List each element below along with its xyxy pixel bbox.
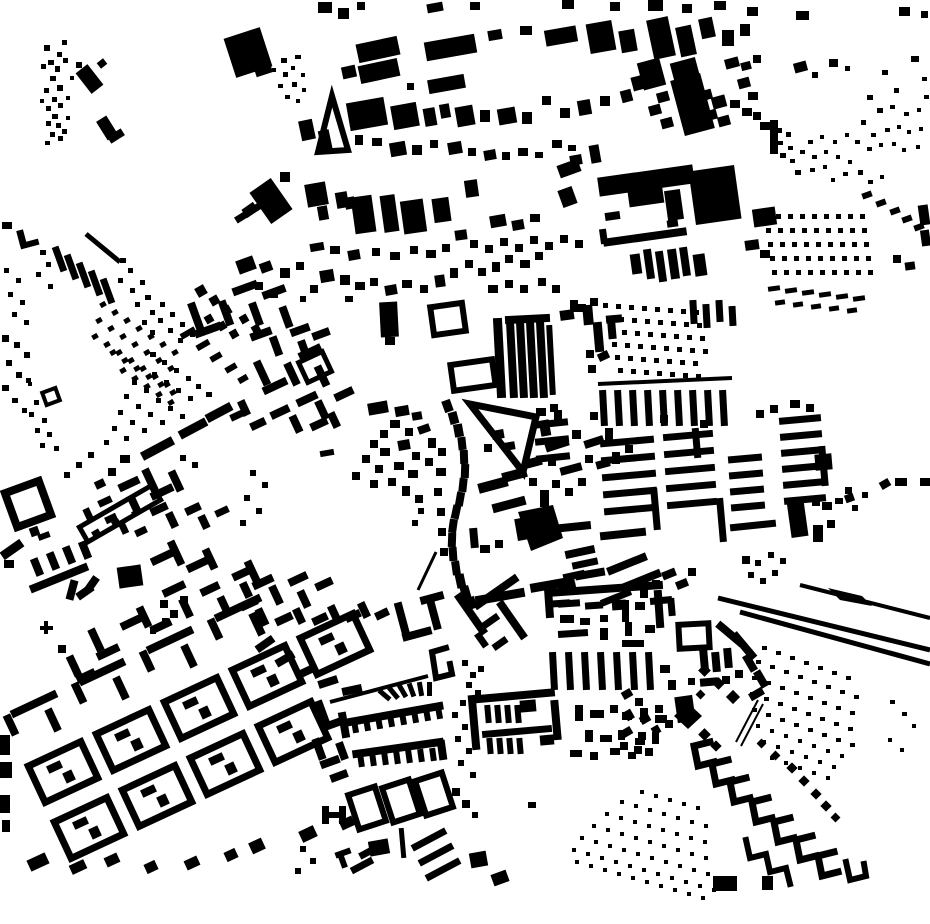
building-footprint	[753, 112, 761, 120]
building-footprint	[642, 306, 647, 311]
building-footprint	[375, 465, 383, 473]
building-footprint	[196, 384, 201, 389]
building-footprint	[762, 876, 773, 890]
building-footprint	[339, 806, 346, 824]
building-footprint	[615, 355, 620, 360]
building-footprint	[280, 268, 290, 278]
building-footprint	[812, 72, 818, 78]
building-footprint	[770, 729, 774, 733]
building-footprint	[700, 677, 719, 687]
building-footprint	[410, 246, 418, 254]
building-footprint	[742, 556, 750, 564]
building-footprint	[495, 540, 503, 548]
building-footprint	[748, 572, 754, 578]
building-footprint	[405, 428, 413, 436]
building-footprint	[788, 146, 793, 150]
building-footprint	[677, 347, 682, 352]
building-footprint	[586, 852, 590, 856]
building-footprint	[845, 133, 849, 137]
building-footprint	[52, 114, 58, 119]
building-footprint	[48, 284, 53, 289]
building-footprint	[76, 462, 82, 468]
building-footprint	[600, 735, 612, 742]
building-footprint	[778, 141, 783, 145]
building-footprint	[610, 705, 618, 713]
building-footprint	[772, 270, 777, 275]
building-footprint	[658, 320, 663, 325]
building-footprint	[170, 312, 175, 317]
building-footprint	[552, 140, 562, 148]
building-footprint	[893, 255, 901, 263]
building-footprint	[622, 712, 632, 720]
building-footprint	[186, 376, 191, 381]
building-footprint	[682, 4, 692, 13]
building-footprint	[822, 733, 827, 737]
building-footprint	[347, 249, 361, 261]
building-footprint	[902, 712, 907, 716]
building-footprint	[370, 440, 378, 448]
building-footprint	[180, 596, 188, 604]
building-footprint	[684, 322, 689, 327]
building-footprint	[322, 806, 329, 824]
building-footprint	[462, 660, 468, 666]
building-footprint	[522, 112, 532, 124]
building-footprint	[840, 242, 845, 247]
building-footprint	[16, 372, 22, 378]
building-footprint	[762, 740, 766, 744]
building-footprint	[478, 666, 484, 672]
building-footprint	[681, 309, 686, 314]
building-footprint	[484, 444, 492, 452]
building-footprint	[160, 600, 168, 608]
building-footprint	[848, 727, 853, 731]
building-footprint	[600, 96, 610, 106]
building-footprint	[788, 214, 793, 219]
building-footprint	[776, 651, 781, 655]
building-footprint	[776, 128, 782, 133]
building-footprint	[300, 846, 306, 852]
building-footprint	[58, 645, 66, 653]
building-footprint	[692, 868, 696, 872]
building-footprint	[460, 450, 468, 464]
building-footprint	[430, 140, 438, 148]
building-footprint	[470, 2, 480, 10]
building-footprint	[46, 121, 51, 126]
building-footprint	[0, 795, 10, 813]
building-footprint	[812, 214, 817, 219]
building-footprint	[690, 852, 694, 856]
building-footprint	[780, 718, 785, 722]
building-footprint	[845, 66, 850, 71]
building-footprint	[871, 133, 876, 137]
building-footprint	[572, 848, 576, 852]
building-footprint	[29, 412, 34, 417]
building-footprint	[760, 250, 770, 258]
building-footprint	[483, 149, 497, 161]
building-footprint	[867, 95, 873, 100]
building-footprint	[780, 153, 786, 158]
building-footprint	[41, 64, 46, 69]
building-footprint	[820, 135, 824, 139]
building-footprint	[48, 60, 54, 65]
building-footprint	[160, 420, 165, 425]
building-footprint	[755, 560, 761, 566]
building-footprint	[638, 344, 643, 349]
building-footprint	[390, 102, 420, 130]
building-footprint	[800, 150, 805, 154]
building-footprint	[104, 440, 109, 445]
building-footprint	[921, 11, 928, 18]
building-footprint	[782, 256, 787, 261]
building-footprint	[426, 250, 436, 258]
building-footprint	[676, 816, 680, 820]
building-footprint	[418, 508, 424, 514]
building-footprint	[280, 172, 290, 182]
building-footprint	[625, 622, 632, 636]
building-footprint	[890, 105, 895, 109]
building-footprint	[355, 282, 365, 290]
building-footprint	[55, 66, 60, 72]
building-footprint	[808, 696, 813, 700]
building-footprint	[813, 525, 823, 542]
building-footprint	[776, 745, 780, 749]
building-footprint	[570, 750, 582, 757]
building-footprint	[156, 398, 161, 403]
building-footprint	[590, 710, 604, 718]
building-footprint	[794, 691, 799, 695]
building-footprint	[904, 112, 909, 116]
building-footprint	[434, 274, 446, 287]
building-footprint	[515, 244, 523, 252]
building-footprint	[698, 884, 702, 888]
building-footprint	[415, 495, 423, 503]
building-footprint	[570, 300, 578, 312]
building-footprint	[645, 748, 653, 756]
building-footprint	[302, 88, 306, 92]
building-footprint	[46, 262, 51, 267]
building-footprint	[4, 560, 14, 568]
building-footprint	[852, 505, 858, 511]
building-footprint	[560, 615, 574, 623]
building-footprint	[575, 860, 579, 864]
building-footprint	[355, 135, 363, 145]
building-footprint	[560, 108, 570, 118]
building-footprint	[505, 280, 513, 288]
building-footprint	[820, 270, 825, 275]
building-footprint	[552, 480, 560, 488]
building-footprint	[577, 99, 592, 116]
building-footprint	[688, 678, 695, 685]
building-footprint	[304, 181, 329, 207]
building-footprint	[854, 256, 859, 261]
building-footprint	[730, 100, 740, 108]
building-footprint	[449, 547, 458, 562]
building-footprint	[330, 246, 340, 254]
building-footprint	[24, 352, 30, 358]
building-footprint	[852, 242, 857, 247]
building-footprint	[628, 864, 632, 868]
building-footprint	[772, 570, 778, 576]
building-footprint	[766, 681, 771, 685]
building-footprint	[778, 228, 783, 233]
building-footprint	[390, 252, 400, 260]
building-footprint	[631, 369, 636, 374]
building-footprint	[830, 256, 835, 261]
building-footprint	[764, 697, 769, 701]
building-footprint	[540, 490, 549, 507]
building-footprint	[625, 445, 633, 453]
building-footprint	[794, 723, 799, 727]
building-footprint	[645, 880, 649, 884]
building-footprint	[796, 11, 809, 20]
building-footprint	[703, 349, 708, 354]
building-footprint	[580, 836, 584, 840]
building-footprint	[62, 40, 67, 45]
building-footprint	[790, 750, 794, 754]
building-footprint	[848, 214, 853, 219]
building-footprint	[664, 860, 668, 864]
building-footprint	[22, 408, 27, 413]
building-footprint	[400, 199, 427, 235]
figure-ground-map-page	[0, 0, 930, 924]
building-footprint	[472, 812, 478, 818]
building-footprint	[352, 472, 360, 480]
building-footprint	[447, 141, 463, 155]
building-footprint	[520, 699, 537, 712]
building-footprint	[655, 715, 667, 723]
building-footprint	[671, 321, 676, 326]
building-footprint	[766, 713, 771, 717]
building-footprint	[160, 302, 165, 307]
building-footprint	[292, 82, 297, 87]
building-footprint	[641, 357, 646, 362]
building-footprint	[760, 122, 770, 130]
building-footprint	[682, 802, 686, 806]
building-footprint	[688, 568, 696, 576]
building-footprint	[823, 165, 827, 169]
building-footprint	[868, 270, 873, 275]
building-footprint	[687, 335, 692, 340]
building-footprint	[427, 682, 432, 696]
building-footprint	[575, 240, 583, 248]
building-footprint	[535, 152, 543, 158]
building-footprint	[617, 872, 621, 876]
building-footprint	[128, 268, 133, 273]
building-footprint	[845, 487, 852, 494]
building-footprint	[892, 142, 896, 146]
building-footprint	[380, 430, 388, 438]
building-footprint	[778, 702, 783, 706]
building-footprint	[562, 0, 574, 9]
building-footprint	[448, 533, 456, 547]
building-footprint	[796, 270, 801, 275]
building-footprint	[668, 798, 672, 802]
building-footprint	[701, 896, 705, 900]
building-footprint	[622, 330, 627, 335]
building-footprint	[700, 336, 705, 341]
building-footprint	[848, 160, 852, 164]
building-footprint	[904, 261, 915, 270]
building-footprint	[586, 20, 617, 54]
building-footprint	[922, 77, 927, 81]
building-footprint	[296, 99, 300, 103]
building-footprint	[397, 439, 411, 451]
building-footprint	[502, 152, 510, 160]
building-footprint	[776, 214, 781, 219]
building-footprint	[810, 168, 815, 172]
building-footprint	[756, 724, 760, 728]
building-footprint	[660, 665, 670, 673]
building-footprint	[291, 66, 295, 70]
building-footprint	[826, 228, 831, 233]
building-footprint	[634, 836, 638, 840]
building-footprint	[117, 564, 144, 588]
building-footprint	[742, 108, 752, 116]
building-footprint	[319, 269, 335, 283]
building-footprint	[520, 260, 530, 268]
building-footprint	[108, 468, 116, 476]
building-footprint	[2, 820, 10, 832]
building-footprint	[168, 328, 173, 333]
building-footprint	[764, 214, 769, 219]
building-footprint	[826, 685, 831, 689]
building-footprint	[744, 239, 759, 251]
building-footprint	[497, 107, 518, 126]
building-footprint	[648, 840, 652, 844]
building-footprint	[735, 670, 743, 678]
building-footprint	[740, 24, 750, 36]
building-footprint	[412, 452, 420, 460]
building-footprint	[668, 680, 676, 690]
building-footprint	[357, 2, 365, 10]
building-footprint	[580, 618, 590, 625]
building-footprint	[256, 508, 262, 514]
building-footprint	[150, 310, 155, 315]
building-footprint	[770, 665, 775, 669]
building-footprint	[836, 155, 840, 159]
building-footprint	[468, 148, 476, 156]
building-footprint	[12, 398, 18, 403]
building-footprint	[812, 680, 817, 684]
building-footprint	[895, 478, 907, 486]
building-footprint	[600, 628, 608, 640]
building-footprint	[606, 316, 611, 321]
building-footprint	[612, 600, 627, 611]
building-footprint	[58, 136, 63, 141]
building-footprint	[425, 458, 433, 466]
building-footprint	[619, 317, 624, 322]
building-footprint	[454, 105, 475, 128]
building-footprint	[920, 478, 930, 486]
building-footprint	[784, 270, 789, 275]
building-footprint	[850, 743, 855, 747]
building-footprint	[644, 370, 649, 375]
building-footprint	[57, 52, 62, 57]
building-footprint	[629, 305, 634, 310]
building-footprint	[827, 520, 835, 528]
building-footprint	[278, 84, 283, 88]
building-footprint	[635, 331, 640, 336]
building-footprint	[295, 868, 301, 874]
building-footprint	[648, 808, 652, 812]
building-footprint	[747, 7, 758, 16]
building-footprint	[575, 705, 583, 721]
building-footprint	[622, 848, 626, 852]
building-footprint	[880, 175, 884, 179]
building-footprint	[12, 312, 17, 317]
building-footprint	[582, 305, 594, 326]
building-footprint	[592, 824, 596, 828]
building-footprint	[806, 256, 811, 261]
building-footprint	[846, 676, 851, 680]
building-footprint	[500, 238, 508, 246]
building-footprint	[675, 832, 679, 836]
building-footprint	[394, 462, 404, 470]
building-footprint	[135, 302, 140, 307]
building-footprint	[697, 323, 702, 328]
building-footprint	[609, 329, 614, 334]
building-footprint	[800, 214, 805, 219]
building-footprint	[428, 438, 436, 448]
building-footprint	[706, 872, 710, 876]
building-footprint	[412, 145, 422, 155]
building-footprint	[318, 2, 332, 13]
building-footprint	[44, 88, 49, 93]
building-footprint	[16, 278, 21, 283]
building-footprint	[50, 132, 55, 137]
building-footprint	[338, 8, 349, 19]
building-footprint	[535, 252, 543, 260]
building-footprint	[565, 488, 573, 496]
building-footprint	[786, 132, 791, 137]
building-footprint	[768, 552, 774, 558]
building-footprint	[606, 828, 610, 832]
building-footprint	[36, 272, 41, 277]
building-footprint	[668, 308, 673, 313]
building-footprint	[188, 396, 193, 401]
building-footprint	[877, 108, 883, 113]
building-footprint	[866, 256, 871, 261]
building-footprint	[674, 334, 679, 339]
building-footprint	[585, 455, 593, 463]
building-footprint	[560, 235, 568, 243]
building-footprint	[902, 148, 906, 152]
building-footprint	[76, 62, 82, 68]
building-footprint	[480, 110, 490, 122]
building-footprint	[753, 55, 761, 63]
building-footprint	[635, 698, 643, 706]
building-footprint	[66, 116, 70, 120]
building-footprint	[590, 412, 598, 420]
building-footprint	[475, 690, 481, 696]
building-footprint	[860, 214, 865, 219]
building-footprint	[713, 876, 737, 891]
figure-ground-map	[0, 0, 930, 924]
building-footprint	[919, 127, 923, 131]
building-footprint	[296, 262, 304, 270]
building-footprint	[752, 676, 757, 680]
building-footprint	[648, 0, 663, 11]
building-footprint	[162, 360, 167, 365]
building-footprint	[858, 170, 863, 175]
building-footprint	[385, 337, 395, 345]
building-footprint	[588, 365, 596, 373]
building-footprint	[42, 418, 47, 423]
building-footprint	[112, 426, 117, 431]
building-footprint	[890, 700, 895, 704]
building-footprint	[600, 856, 604, 860]
building-footprint	[466, 748, 472, 754]
